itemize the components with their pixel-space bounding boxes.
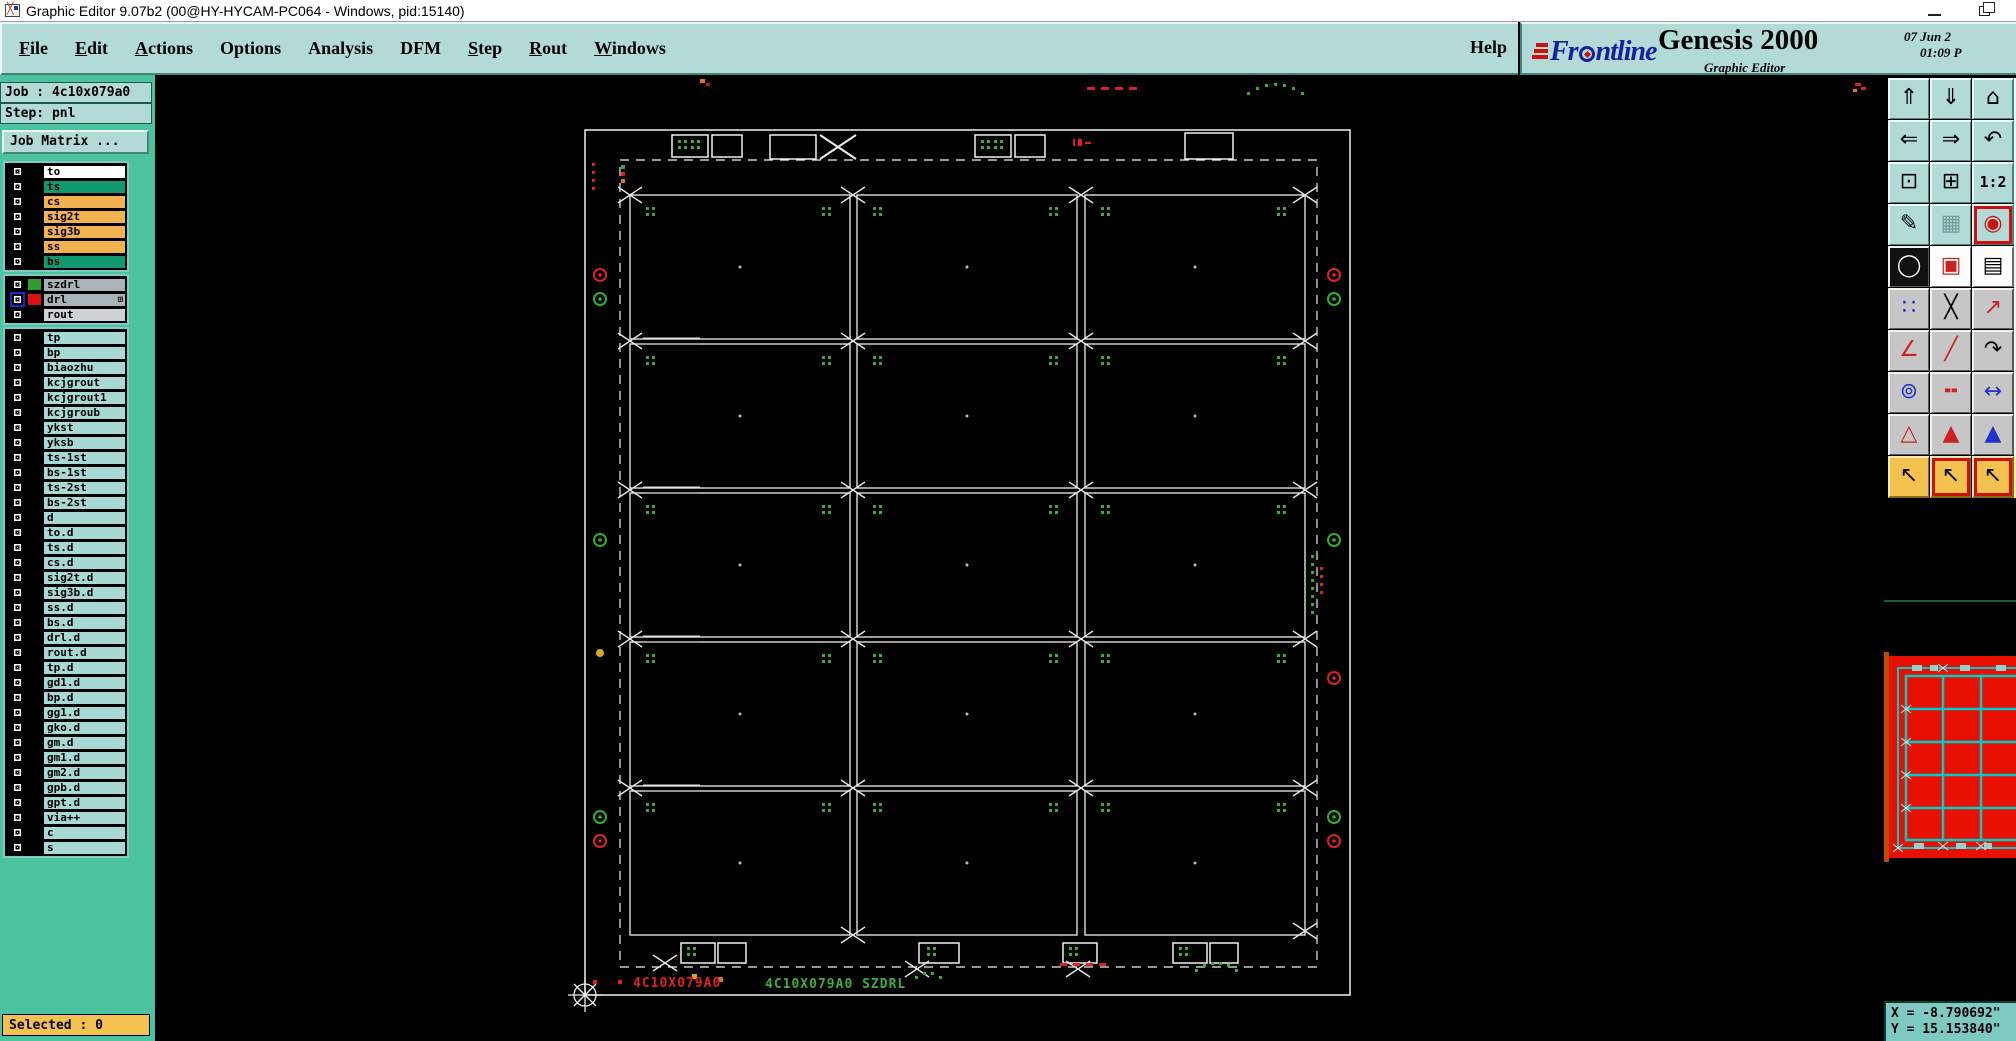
layer-name: bs <box>47 256 60 268</box>
layer-name: ts-1st <box>47 452 87 464</box>
layer-row[interactable]: rout.d <box>6 645 126 660</box>
layer-row[interactable]: bs-2st <box>6 495 126 510</box>
distance-measure-button[interactable]: ╱ <box>1930 330 1972 372</box>
view-down-button[interactable]: ⇓ <box>1930 78 1972 120</box>
layer-name: to.d <box>47 527 74 539</box>
line-width-button[interactable]: ╍ <box>1930 372 1972 414</box>
layer-row[interactable]: bp <box>6 345 126 360</box>
layer-color-chip <box>28 827 41 838</box>
board-id-green: 4C10X079A0 SZDRL <box>765 977 906 992</box>
layer-color-chip <box>28 557 41 568</box>
rotate-view-button[interactable]: ↷ <box>1972 330 2014 372</box>
layer-checkbox[interactable] <box>12 294 23 305</box>
layer-name: cs.d <box>47 557 74 569</box>
layer-name: sig3b.d <box>47 587 93 599</box>
frontline-bars-icon <box>1532 42 1548 62</box>
layer-row[interactable]: kcjgroub <box>6 405 126 420</box>
layer-checkbox[interactable] <box>12 452 23 463</box>
layer-checkbox[interactable] <box>12 497 23 508</box>
layer-name: sig3b <box>47 226 80 238</box>
layer-checkbox[interactable] <box>12 437 23 448</box>
pad-copy-button[interactable]: ⊚ <box>1888 372 1930 414</box>
app-subtitle: Graphic Editor <box>1704 60 1785 76</box>
layer-color-chip <box>28 407 41 418</box>
layer-checkbox[interactable] <box>12 602 23 613</box>
layer-color-chip <box>28 707 41 718</box>
layer-row[interactable]: gg1.d <box>6 705 126 720</box>
selected-count: Selected : 0 <box>2 1014 150 1036</box>
layer-color-chip <box>28 362 41 373</box>
time-label: 01:09 P <box>1920 45 1962 61</box>
date-label: 07 Jun 2 <box>1904 29 1951 45</box>
layer-checkbox[interactable] <box>12 842 23 853</box>
layer-name: gg1.d <box>47 707 80 719</box>
layer-group-drill: szdrl drl⊞ rout <box>3 274 129 325</box>
layer-name: szdrl <box>47 279 80 291</box>
layer-checkbox[interactable] <box>12 211 23 222</box>
layer-row[interactable]: bs-1st <box>6 465 126 480</box>
select-mode-button[interactable]: ↖ <box>1888 456 1930 498</box>
layer-name: gpb.d <box>47 782 80 794</box>
zoom-1-2-button[interactable]: 1:2 <box>1972 162 2014 204</box>
layer-checkbox[interactable] <box>12 332 23 343</box>
menu-edit[interactable]: Edit <box>75 38 108 59</box>
main-canvas[interactable]: 4C10X079A0 4C10X079A0 SZDRL <box>155 75 1884 1041</box>
point-snap-button[interactable]: ↗ <box>1972 288 2014 330</box>
layer-color-chip <box>28 166 41 177</box>
triangle-up-button[interactable]: ▲ <box>1930 414 1972 456</box>
layer-row[interactable]: to <box>6 164 126 179</box>
layer-row[interactable]: ts-2st <box>6 480 126 495</box>
layer-checkbox[interactable] <box>12 812 23 823</box>
layer-row[interactable]: s <box>6 840 126 855</box>
menu-step[interactable]: Step <box>468 38 502 59</box>
layer-name: gm2.d <box>47 767 80 779</box>
layer-color-chip <box>28 512 41 523</box>
minimize-button-icon[interactable] <box>1928 14 1941 16</box>
layer-row[interactable]: gpt.d <box>6 795 126 810</box>
layer-name: ts.d <box>47 542 74 554</box>
restore-button-icon[interactable] <box>1979 6 1990 16</box>
layer-color-chip <box>28 737 41 748</box>
layer-row[interactable]: bp.d <box>6 690 126 705</box>
layer-color-chip <box>28 812 41 823</box>
layer-name: ss <box>47 241 60 253</box>
job-matrix-button[interactable]: Job Matrix ... <box>2 130 149 154</box>
rail-divider <box>1884 600 2016 602</box>
layer-name: ykst <box>47 422 74 434</box>
menu-bar: File Edit Actions Options Analysis DFM S… <box>0 22 1518 75</box>
layer-row[interactable]: ts <box>6 179 126 194</box>
layer-checkbox[interactable] <box>12 181 23 192</box>
layer-color-chip <box>28 241 41 252</box>
layer-checkbox[interactable] <box>12 467 23 478</box>
layer-checkbox[interactable] <box>12 617 23 628</box>
menu-help[interactable]: Help <box>1470 37 1507 58</box>
layer-name: bs.d <box>47 617 74 629</box>
home-view-button[interactable]: ⌂ <box>1972 78 2014 120</box>
x-coordinate: X = -8.790692" <box>1891 1006 2016 1022</box>
cell-marks <box>646 207 1286 865</box>
view-up-button[interactable]: ⇑ <box>1888 78 1930 120</box>
brand-panel: Frntline Genesis 2000 Graphic Editor 07 … <box>1520 22 2016 75</box>
layer-color-chip <box>28 587 41 598</box>
layer-checkbox[interactable] <box>12 196 23 207</box>
layer-color-chip <box>28 452 41 463</box>
layer-checkbox[interactable] <box>12 407 23 418</box>
layer-name: yksb <box>47 437 74 449</box>
layer-color-chip <box>28 842 41 853</box>
select-poly-mode-button[interactable]: ↖ <box>1972 456 2014 498</box>
layer-row[interactable]: biaozhu <box>6 360 126 375</box>
layer-name: drl <box>47 294 67 306</box>
menu-windows[interactable]: Windows <box>594 38 666 59</box>
layer-checkbox[interactable] <box>12 707 23 718</box>
layer-row[interactable]: sig2t.d <box>6 570 126 585</box>
layer-row[interactable]: ts-1st <box>6 450 126 465</box>
layer-name: kcjgroub <box>47 407 100 419</box>
menu-actions[interactable]: Actions <box>135 38 193 59</box>
layer-row[interactable]: gd1.d <box>6 675 126 690</box>
window-title: Graphic Editor 9.07b2 (00@HY-HYCAM-PC064… <box>26 3 465 19</box>
layer-row[interactable]: ss <box>6 239 126 254</box>
layer-name: ss.d <box>47 602 74 614</box>
layer-checkbox[interactable] <box>12 662 23 673</box>
net-highlight-button[interactable]: ∷ <box>1888 288 1930 330</box>
previous-view-button[interactable]: ↶ <box>1972 120 2014 162</box>
layer-checkbox[interactable] <box>12 482 23 493</box>
layer-color-chip <box>28 647 41 658</box>
layer-group-board: to ts cs sig2t <box>3 161 129 272</box>
layer-row[interactable]: gm.d <box>6 735 126 750</box>
layer-color-chip <box>28 767 41 778</box>
job-label: Job : 4c10x079a0 <box>0 82 152 103</box>
layer-row[interactable]: cs <box>6 194 126 209</box>
grid-settings-button[interactable]: ▦ <box>1930 204 1972 246</box>
layer-checkbox[interactable] <box>12 632 23 643</box>
layer-checkbox[interactable] <box>12 512 23 523</box>
layer-name: rout.d <box>47 647 87 659</box>
layer-color-chip <box>28 437 41 448</box>
layer-color-chip <box>28 226 41 237</box>
coordinate-readout: X = -8.790692" Y = 15.153840" <box>1884 1001 2016 1041</box>
layer-checkbox[interactable] <box>12 692 23 703</box>
menu-dfm[interactable]: DFM <box>400 38 441 59</box>
layer-color-chip <box>28 347 41 358</box>
frontline-o-icon <box>1579 46 1595 62</box>
layer-color-chip <box>28 392 41 403</box>
tooling-blocks-top <box>672 133 1233 159</box>
layer-name: tp <box>47 332 60 344</box>
app-icon <box>5 4 20 17</box>
layer-name: bp <box>47 347 60 359</box>
layer-name: gd1.d <box>47 677 80 689</box>
frontline-logo: Frntline <box>1532 36 1657 68</box>
layer-name: sig2t <box>47 211 80 223</box>
layer-checkbox[interactable] <box>12 752 23 763</box>
shape-editor-button[interactable]: ▣ <box>1930 246 1972 288</box>
zoom-fit-button[interactable]: ⊡ <box>1888 162 1930 204</box>
layer-color-chip <box>28 542 41 553</box>
layer-row[interactable]: sig2t <box>6 209 126 224</box>
view-right-button[interactable]: ⇒ <box>1930 120 1972 162</box>
layer-name: gm1.d <box>47 752 80 764</box>
layer-checkbox[interactable] <box>12 737 23 748</box>
layer-name: gpt.d <box>47 797 80 809</box>
layer-checkbox[interactable] <box>12 392 23 403</box>
layer-color-chip <box>28 632 41 643</box>
layer-row[interactable]: gpb.d <box>6 780 126 795</box>
triangle-tool-button[interactable]: △ <box>1888 414 1930 456</box>
layer-color-chip <box>28 482 41 493</box>
targets-button[interactable]: ◉ <box>1972 204 2014 246</box>
layer-color-chip <box>28 572 41 583</box>
layer-row[interactable]: bs.d <box>6 615 126 630</box>
menu-rout[interactable]: Rout <box>529 38 567 59</box>
junction-marks <box>618 135 1317 943</box>
layer-list: to ts cs sig2t <box>3 161 129 860</box>
layer-color-chip <box>28 196 41 207</box>
menu-options[interactable]: Options <box>220 38 281 59</box>
layer-row[interactable]: gm2.d <box>6 765 126 780</box>
layer-row[interactable]: rout <box>6 307 126 322</box>
layer-name: kcjgrout <box>47 377 100 389</box>
layer-color-chip <box>28 527 41 538</box>
layer-color-chip <box>28 467 41 478</box>
layer-name: ts <box>47 181 60 193</box>
layer-name: via++ <box>47 812 80 824</box>
layer-name: tp.d <box>47 662 74 674</box>
step-label: Step: pnl <box>0 103 152 124</box>
layer-row[interactable]: tp.d <box>6 660 126 675</box>
layer-name: d <box>47 512 54 524</box>
edge-markers <box>594 269 1340 847</box>
toolbar: ⇑ ⇓ ⌂ ⇐ ⇒ ↶ ⊡ <box>1888 78 2014 498</box>
layer-row[interactable]: szdrl <box>6 277 126 292</box>
layer-checkbox[interactable] <box>12 347 23 358</box>
layer-name: bp.d <box>47 692 74 704</box>
layer-color-chip <box>28 497 41 508</box>
layer-row[interactable]: gko.d <box>6 720 126 735</box>
layer-row[interactable]: to.d <box>6 525 126 540</box>
layer-checkbox[interactable] <box>12 256 23 267</box>
layer-checkbox[interactable] <box>12 241 23 252</box>
layer-color-chip <box>28 332 41 343</box>
layer-checkbox[interactable] <box>12 677 23 688</box>
layer-checkbox[interactable] <box>12 782 23 793</box>
layer-color-chip <box>28 377 41 388</box>
layer-color-chip <box>28 722 41 733</box>
layer-checkbox[interactable] <box>12 797 23 808</box>
layer-name: rout <box>47 309 74 321</box>
y-coordinate: Y = 15.153840" <box>1891 1022 2016 1038</box>
triangle-wide-button[interactable]: ▲ <box>1972 414 2014 456</box>
layer-checkbox[interactable] <box>12 722 23 733</box>
layer-row[interactable]: ts.d <box>6 540 126 555</box>
layer-row[interactable]: sig3b.d <box>6 585 126 600</box>
layer-row[interactable]: ykst <box>6 420 126 435</box>
layer-checkbox[interactable] <box>12 827 23 838</box>
board-id-red: 4C10X079A0 <box>633 976 721 991</box>
layer-color-chip <box>28 782 41 793</box>
layer-color-chip <box>28 422 41 433</box>
layer-checkbox[interactable] <box>12 377 23 388</box>
layer-color-chip <box>28 677 41 688</box>
setup-editor-button[interactable]: ✎ <box>1888 204 1930 246</box>
layer-checkbox[interactable] <box>12 166 23 177</box>
layer-checkbox[interactable] <box>12 572 23 583</box>
layer-row[interactable]: tp <box>6 330 126 345</box>
layer-checkbox[interactable] <box>12 542 23 553</box>
layer-color-chip <box>28 256 41 267</box>
layer-color-chip <box>28 752 41 763</box>
layer-name: biaozhu <box>47 362 93 374</box>
layer-group-misc: tp bp biaozhu kcjgrout <box>3 327 129 858</box>
panel-thumbnail[interactable] <box>1884 652 2016 862</box>
layer-row[interactable]: bs <box>6 254 126 269</box>
view-left-button[interactable]: ⇐ <box>1888 120 1930 162</box>
layer-color-chip <box>28 181 41 192</box>
layer-checkbox[interactable] <box>12 557 23 568</box>
unselect-button[interactable]: ╳ <box>1930 288 1972 330</box>
layer-row[interactable]: via++ <box>6 810 126 825</box>
layer-checkbox[interactable] <box>12 226 23 237</box>
layer-name: s <box>47 842 54 854</box>
layer-checkbox[interactable] <box>12 587 23 598</box>
layer-checkbox[interactable] <box>12 527 23 538</box>
layer-name: to <box>47 166 60 178</box>
layer-row[interactable]: ss.d <box>6 600 126 615</box>
layer-row[interactable]: sig3b <box>6 224 126 239</box>
layer-checkbox[interactable] <box>12 422 23 433</box>
layer-color-chip <box>28 294 41 305</box>
layer-color-chip <box>28 797 41 808</box>
layer-checkbox[interactable] <box>12 279 23 290</box>
menu-file[interactable]: File <box>19 38 48 59</box>
measure-ruler-button[interactable]: ▤ <box>1972 246 2014 288</box>
layer-color-chip <box>28 211 41 222</box>
layer-color-chip <box>28 309 41 320</box>
menu-analysis[interactable]: Analysis <box>308 38 373 59</box>
layer-name: drl.d <box>47 632 80 644</box>
layer-name: sig2t.d <box>47 572 93 584</box>
layer-name: gm.d <box>47 737 74 749</box>
panel-drawing: 4C10X079A0 4C10X079A0 SZDRL <box>155 75 1884 1041</box>
layer-name: cs <box>47 196 60 208</box>
zoom-center-button[interactable]: ⊞ <box>1930 162 1972 204</box>
left-sidebar: Job : 4c10x079a0 Step: pnl Job Matrix ..… <box>0 75 155 1041</box>
layer-row[interactable]: gm1.d <box>6 750 126 765</box>
width-measure-button[interactable]: ↔ <box>1972 372 2014 414</box>
layer-name: kcjgrout1 <box>47 392 107 404</box>
angle-measure-button[interactable]: ∠ <box>1888 330 1930 372</box>
layer-name: ts-2st <box>47 482 87 494</box>
product-name: Genesis 2000 <box>1658 24 1818 57</box>
layer-color-chip <box>28 662 41 673</box>
layer-color-chip <box>28 279 41 290</box>
layer-color-chip <box>28 602 41 613</box>
right-toolbar-rail: ⇑ ⇓ ⌂ ⇐ ⇒ ↶ ⊡ <box>1884 75 2016 1041</box>
layer-display-button[interactable]: ◯ <box>1888 246 1930 288</box>
layer-checkbox[interactable] <box>12 647 23 658</box>
layer-row[interactable]: drl⊞ <box>6 292 126 307</box>
tooling-blocks-bottom <box>681 943 1238 963</box>
layer-row[interactable]: drl.d <box>6 630 126 645</box>
layer-row[interactable]: d <box>6 510 126 525</box>
layer-name: bs-1st <box>47 467 87 479</box>
layer-row[interactable]: yksb <box>6 435 126 450</box>
layer-color-chip <box>28 617 41 628</box>
layer-name: c <box>47 827 54 839</box>
scatter-marks <box>592 79 1866 984</box>
layer-name: bs-2st <box>47 497 87 509</box>
layer-checkbox[interactable] <box>12 362 23 373</box>
select-frame-mode-button[interactable]: ↖ <box>1930 456 1972 498</box>
title-bar: Graphic Editor 9.07b2 (00@HY-HYCAM-PC064… <box>0 0 2016 22</box>
layer-row[interactable]: kcjgrout <box>6 375 126 390</box>
layer-row[interactable]: kcjgrout1 <box>6 390 126 405</box>
layer-row[interactable]: cs.d <box>6 555 126 570</box>
layer-checkbox[interactable] <box>12 309 23 320</box>
layer-color-chip <box>28 692 41 703</box>
layer-row[interactable]: c <box>6 825 126 840</box>
layer-name: gko.d <box>47 722 80 734</box>
layer-checkbox[interactable] <box>12 767 23 778</box>
